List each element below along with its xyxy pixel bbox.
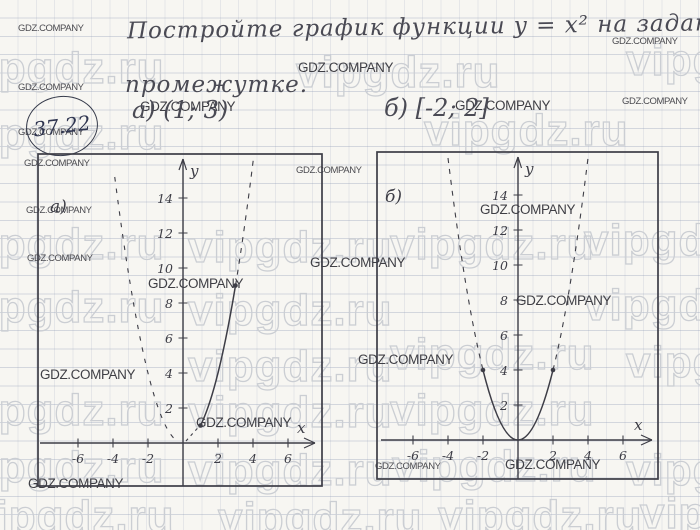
y-tick-label: 8 — [500, 293, 508, 308]
vipgdz-watermark: vipgdz.ru — [0, 492, 175, 530]
graph-a: y x 14 12 10 8 6 4 2 -6 -4 -2 2 4 6 а) — [34, 150, 326, 490]
graph-a-label: а) — [50, 197, 67, 217]
vipgdz-watermark: vipgdz.ru — [218, 494, 423, 530]
task-title-line2: промежутке. — [125, 72, 308, 98]
x-tick-label: -6 — [72, 451, 84, 466]
endpoint-dot — [198, 423, 203, 428]
graph-a-frame — [38, 154, 322, 486]
y-tick-label: 14 — [492, 188, 508, 203]
x-tick-label: 4 — [248, 451, 257, 466]
y-tick-label: 6 — [500, 328, 508, 343]
gdz-watermark: GDZ.COMPANY — [622, 96, 688, 107]
graph-b-y-axis-label: y — [524, 160, 534, 178]
y-tick-label: 12 — [492, 223, 508, 238]
x-tick-label: 4 — [583, 448, 592, 463]
endpoint-dot — [551, 368, 556, 373]
x-tick-label: 2 — [213, 451, 222, 466]
parabola-right-branch-dashed — [553, 158, 588, 370]
x-tick-label: 2 — [548, 448, 557, 463]
x-tick-label: 6 — [284, 451, 292, 466]
x-tick-label: -4 — [442, 448, 454, 463]
graph-b: y x 14 12 10 8 6 4 2 -6 -4 -2 2 4 6 б) — [373, 146, 663, 486]
graph-a-y-axis-label: y — [189, 162, 199, 180]
vipgdz-watermark: vipgdz.ru — [438, 492, 643, 530]
part-a-header: а) (1; 3) — [132, 96, 228, 124]
parabola-left-branch-dashed — [448, 158, 483, 370]
y-tick-label: 4 — [164, 366, 173, 381]
vipgdz-watermark: vipgdz.ru — [640, 489, 700, 530]
parabola-near-origin-dashed — [186, 427, 199, 442]
y-tick-label: 10 — [492, 258, 508, 273]
gdz-watermark: GDZ.COMPANY — [612, 36, 678, 47]
graph-b-x-axis-label: x — [634, 416, 643, 434]
y-tick-label: 12 — [157, 226, 173, 241]
y-tick-label: 2 — [164, 401, 173, 416]
x-tick-label: -2 — [142, 451, 154, 466]
parabola-upper-branch-dashed — [236, 158, 254, 286]
parabola-solid-segment — [201, 286, 236, 426]
y-tick-label: 6 — [165, 331, 173, 346]
notebook-page: vipgdz.ru vipgdz.ru vipgdz.ru vipgdz.ru … — [0, 0, 700, 530]
part-b-header: б) [-2; 2] — [384, 94, 489, 122]
y-tick-label: 4 — [499, 363, 508, 378]
y-tick-label: 14 — [157, 191, 173, 206]
y-tick-label: 8 — [165, 296, 173, 311]
problem-number: 37.22 — [32, 111, 92, 142]
endpoint-dot — [233, 283, 238, 288]
x-tick-label: -4 — [107, 451, 119, 466]
y-tick-label: 2 — [499, 398, 508, 413]
x-tick-label: 6 — [619, 448, 627, 463]
gdz-watermark: GDZ.COMPANY — [298, 60, 393, 75]
y-tick-label: 10 — [157, 261, 173, 276]
gdz-watermark: GDZ.COMPANY — [18, 23, 84, 34]
x-tick-label: -2 — [477, 448, 489, 463]
x-tick-label: -6 — [407, 448, 419, 463]
graph-a-x-axis-label: x — [297, 419, 306, 437]
graph-b-label: б) — [385, 187, 402, 207]
gdz-watermark: GDZ.COMPANY — [18, 82, 84, 93]
endpoint-dot — [481, 368, 486, 373]
